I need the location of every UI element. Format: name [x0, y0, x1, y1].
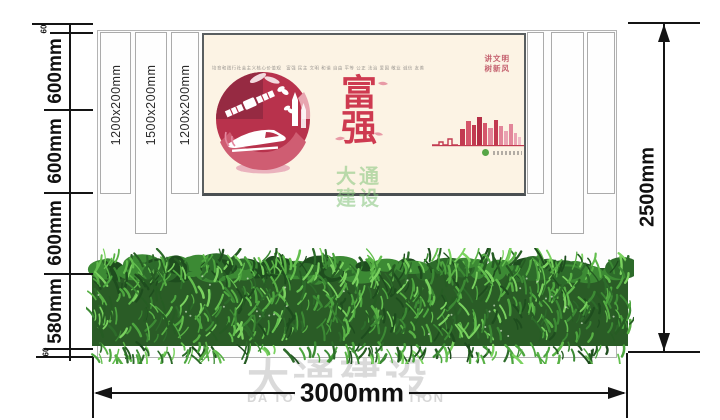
- post-strip-left-2: 1500x200mm: [135, 32, 167, 234]
- post-strip-right-2: [551, 32, 584, 234]
- arrow-up-icon: [658, 24, 670, 42]
- poster-slogan: 讲文明 树新风: [485, 54, 511, 73]
- dim-label-600-3: 600mm: [45, 200, 67, 266]
- leaf-accents-icon: [332, 75, 392, 153]
- post-strip-right-3: [587, 32, 615, 194]
- watermark-center-line1: 大通: [336, 166, 382, 188]
- watermark-center-line2: 建设: [336, 188, 382, 210]
- post-strip-right-1: [527, 32, 544, 194]
- post-strip-left-2-label: 1500x200mm: [144, 65, 158, 146]
- post-strip-left-1: 1200x200mm: [100, 32, 131, 194]
- post-strip-left-3: 1200x200mm: [171, 32, 199, 194]
- dim-left-tick-2: [44, 192, 93, 194]
- poster-slogan-line1: 讲文明: [485, 54, 511, 64]
- arrow-left-icon: [94, 387, 112, 399]
- arrow-right-icon: [608, 387, 626, 399]
- dim-label-60-bottom: 60: [42, 348, 51, 357]
- papercut-circle-artwork-icon: [206, 62, 318, 184]
- dim-label-3000: 3000mm: [295, 378, 409, 409]
- dim-left-tick-4: [44, 348, 93, 350]
- green-seal-icon: [482, 149, 489, 156]
- watermark-center: 大通 建设: [336, 166, 382, 210]
- dim-label-2500: 2500mm: [637, 147, 660, 227]
- post-strip-left-3-label: 1200x200mm: [178, 65, 192, 146]
- hedge-plants: [86, 248, 634, 364]
- dim-left-tick-3: [44, 273, 93, 275]
- dim-label-600-1: 600mm: [45, 38, 67, 104]
- post-strip-left-1-label: 1200x200mm: [109, 65, 123, 146]
- dim-left-tick-1: [44, 109, 93, 111]
- dim-label-580: 580mm: [45, 278, 67, 344]
- dim-right-line: [663, 24, 665, 352]
- skyline-artwork-icon: [432, 114, 524, 150]
- dim-bottom-ext-right: [626, 353, 628, 418]
- construction-drawing-page: { "dims": { "left_labels": ["60", "600mm…: [0, 0, 720, 420]
- dim-label-600-2: 600mm: [45, 118, 67, 184]
- poster-slogan-line2: 树新风: [485, 64, 511, 74]
- dim-label-60-top: 60: [40, 25, 49, 34]
- arrow-down-icon: [658, 333, 670, 351]
- dim-left-tick-60: [50, 32, 93, 34]
- fine-print-illegible: [493, 151, 522, 155]
